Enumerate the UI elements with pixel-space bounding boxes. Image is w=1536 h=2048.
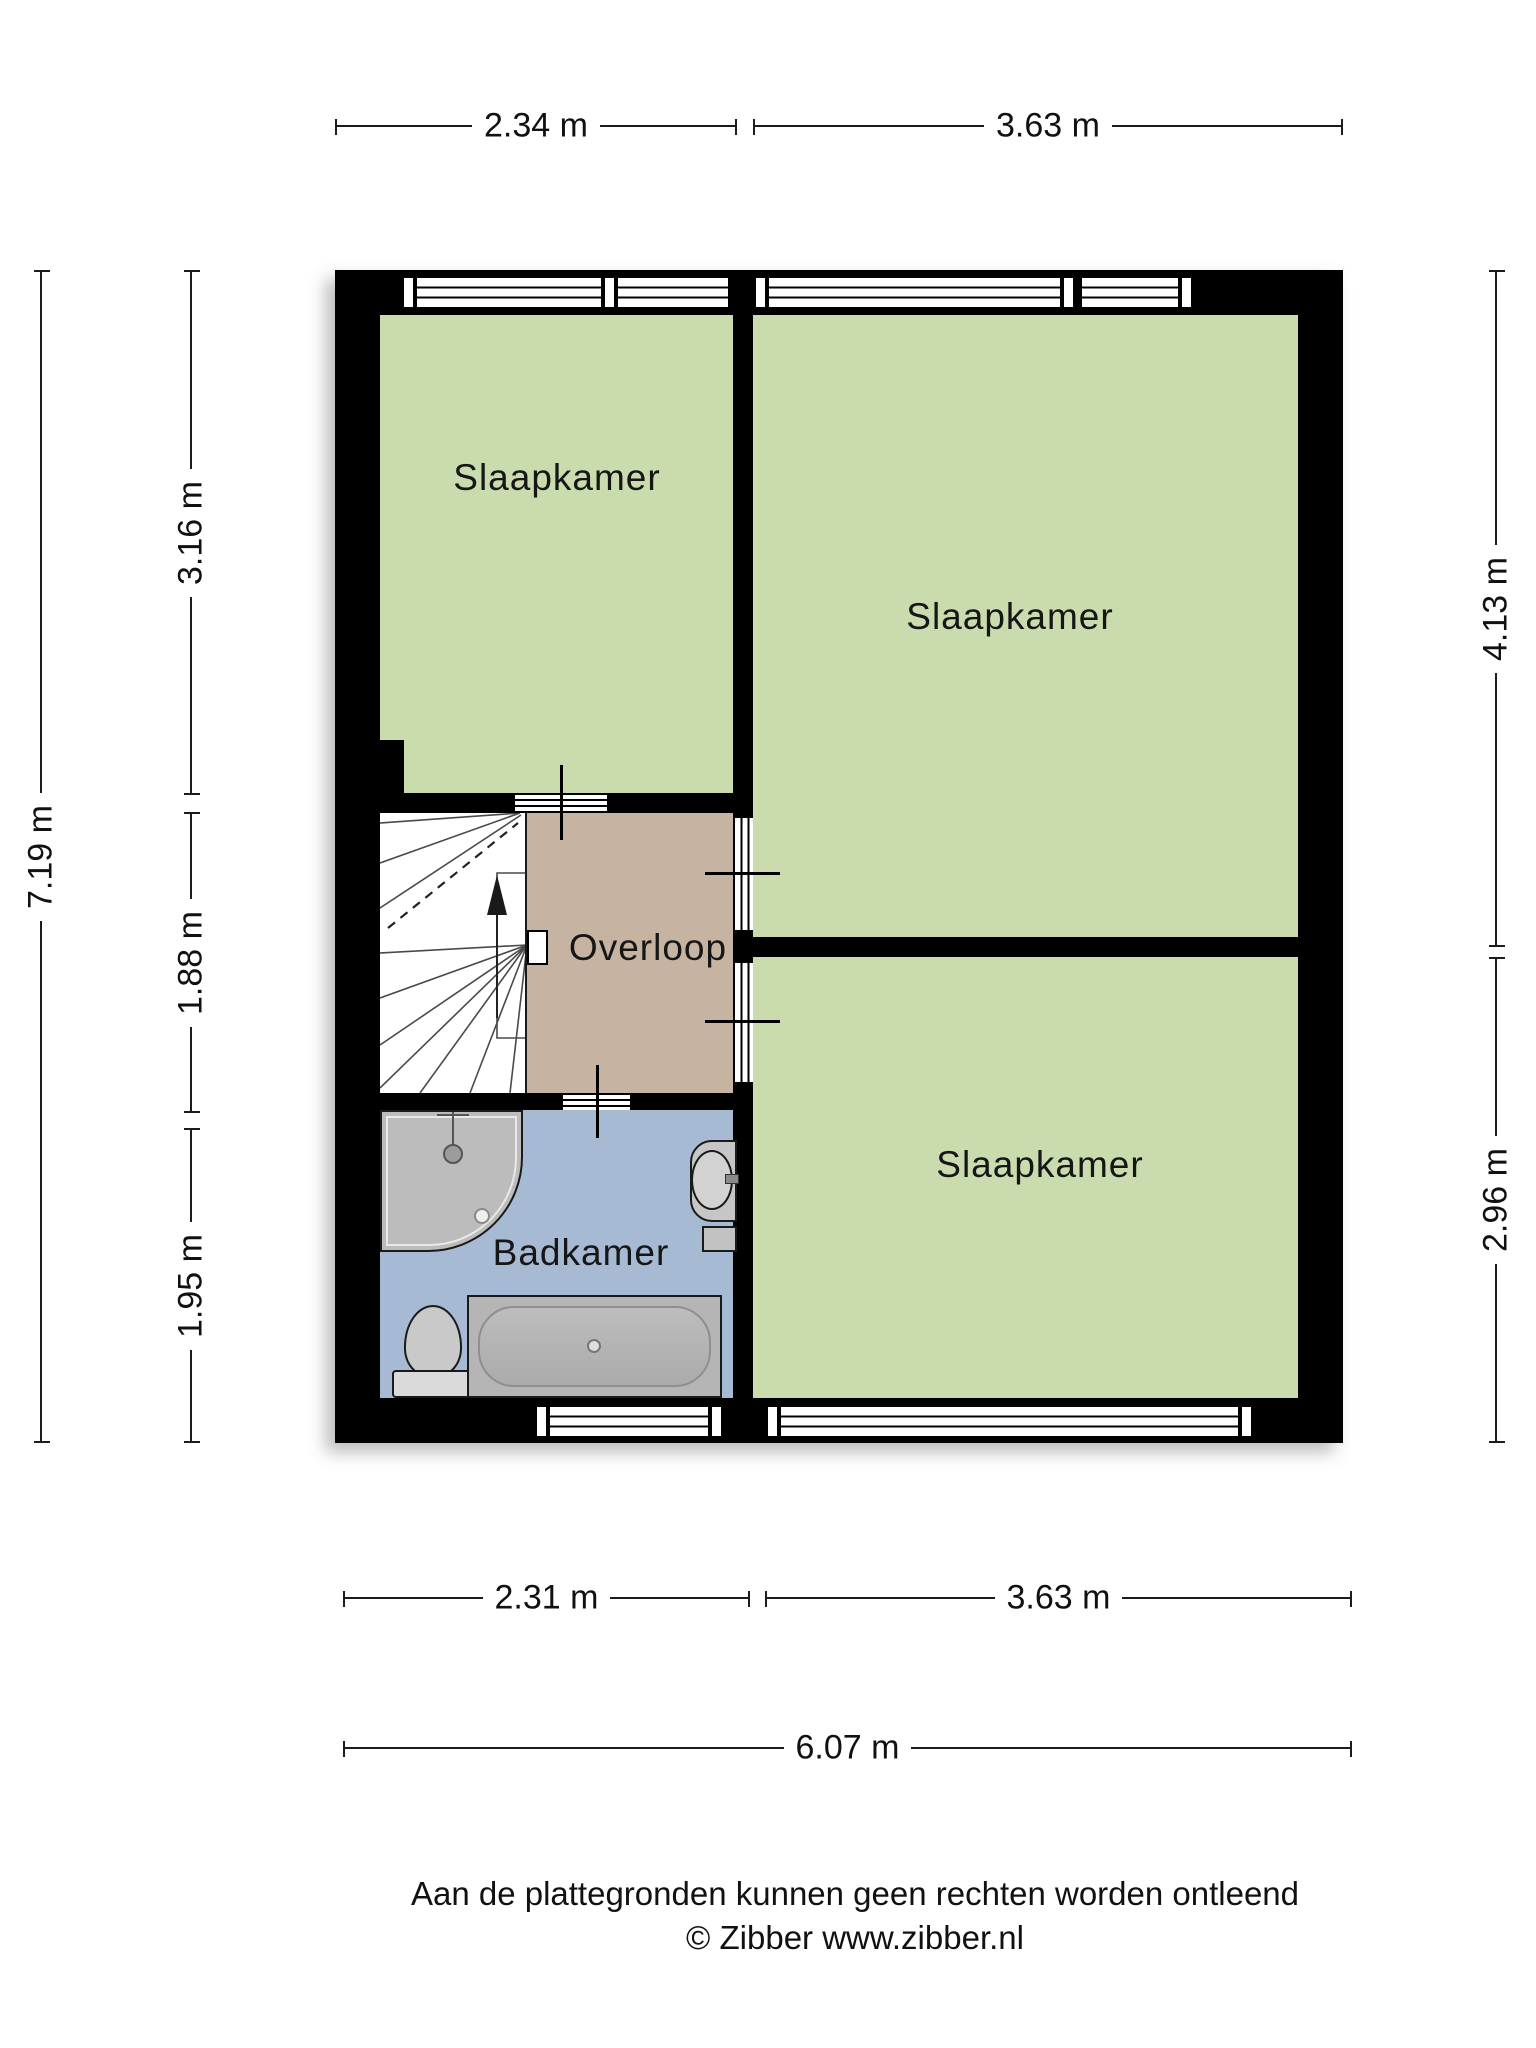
window-jamb [1062,276,1075,309]
door-tick [705,1020,780,1023]
dimension-label: 7.19 m [22,793,61,921]
door-tick [596,1065,599,1138]
dimension-label: 3.63 m [984,107,1112,146]
window-jamb [710,1405,723,1438]
dimension-bottom-left: 2.31 m [343,1597,750,1599]
dimension-label: 3.63 m [995,1579,1123,1618]
wall-bedrooms-right-divider [753,937,1298,957]
stair-landing-post [527,930,548,965]
floorplan-page: Slaapkamer Slaapkamer Slaapkamer Overloo… [0,0,1536,2048]
staircase [380,813,527,1093]
dimension-label: 4.13 m [1477,545,1516,673]
room-slaapkamer-top-left [380,315,733,793]
bathtub-drain [587,1339,601,1353]
dimension-label: 2.31 m [483,1579,611,1618]
room-label-overloop: Overloop [569,927,727,969]
room-label-badkamer: Badkamer [493,1232,670,1274]
dimension-top-left: 2.34 m [335,125,737,127]
dimension-right-2: 2.96 m [1495,957,1497,1443]
bathtub [467,1295,722,1398]
dimension-label: 2.34 m [472,107,600,146]
window-jamb [535,1405,548,1438]
footer: Aan de plattegronden kunnen geen rechten… [335,1872,1375,1960]
toilet-cistern [392,1370,472,1398]
window-jamb [603,276,616,309]
floor-plan: Slaapkamer Slaapkamer Slaapkamer Overloo… [335,270,1343,1443]
dimension-bottom-right: 3.63 m [765,1597,1352,1599]
bathroom-wall-unit [702,1226,737,1252]
wall-left [335,270,380,1443]
window-jamb [1240,1405,1253,1438]
dimension-left-2: 1.88 m [190,812,192,1113]
window-jamb [1180,276,1193,309]
window-jamb [402,276,415,309]
dimension-top-right: 3.63 m [753,125,1343,127]
window [616,276,730,309]
window [1080,276,1180,309]
door-tick [560,765,563,840]
dimension-label: 1.88 m [172,899,211,1027]
door-tick [705,872,780,875]
window [548,1405,710,1438]
room-label-slaapkamer-top-right: Slaapkamer [906,596,1113,638]
wall-bathroom-top [380,1093,733,1110]
window [779,1405,1240,1438]
dimension-label: 6.07 m [784,1729,912,1768]
sink-tap-icon [725,1174,739,1184]
wall-notch-step [380,740,404,793]
dimension-left-1: 3.16 m [190,270,192,795]
room-label-slaapkamer-top-left: Slaapkamer [453,457,660,499]
dimension-label: 2.96 m [1477,1136,1516,1264]
window [767,276,1062,309]
footer-credit: © Zibber www.zibber.nl [335,1916,1375,1960]
dimension-label: 1.95 m [172,1222,211,1350]
dimension-right-1: 4.13 m [1495,270,1497,947]
window-jamb [766,1405,779,1438]
shower-head-icon [382,1112,525,1172]
wall-right [1298,270,1343,1443]
window-jamb [754,276,767,309]
dimension-label: 3.16 m [172,469,211,597]
dimension-bottom-overall: 6.07 m [343,1747,1352,1749]
room-label-slaapkamer-bottom-right: Slaapkamer [936,1144,1143,1186]
window [415,276,603,309]
dimension-left-3: 1.95 m [190,1128,192,1443]
dimension-left-overall: 7.19 m [40,270,42,1443]
footer-disclaimer: Aan de plattegronden kunnen geen rechten… [335,1872,1375,1916]
shower-drain [474,1208,490,1224]
